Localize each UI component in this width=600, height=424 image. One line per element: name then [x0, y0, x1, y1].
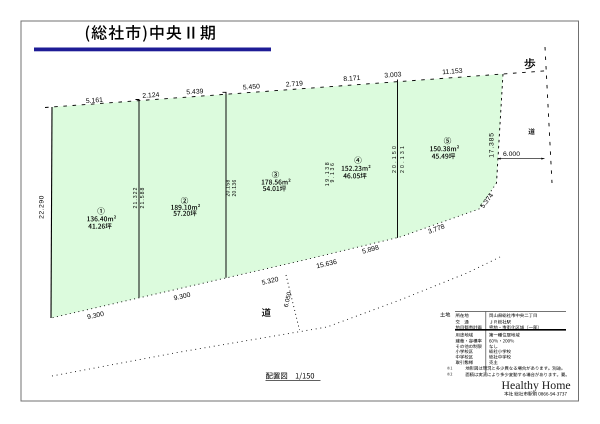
svg-text:5.320: 5.320: [261, 276, 279, 287]
svg-text:3.003: 3.003: [384, 71, 402, 79]
svg-text:5.161: 5.161: [86, 97, 104, 105]
svg-text:15.636: 15.636: [316, 259, 338, 271]
svg-text:22.290: 22.290: [38, 195, 45, 219]
svg-text:6.050: 6.050: [283, 291, 293, 308]
svg-text:Healthy Home: Healthy Home: [502, 378, 571, 392]
svg-text:9.300: 9.300: [173, 292, 191, 303]
svg-text:6.000: 6.000: [503, 151, 520, 158]
svg-text:2.124: 2.124: [142, 92, 160, 100]
svg-text:20.136: 20.136: [232, 179, 238, 196]
svg-text:20.131: 20.131: [400, 144, 406, 173]
svg-text:5.450: 5.450: [243, 83, 261, 91]
svg-text:21.588: 21.588: [140, 187, 146, 209]
svg-text:8.171: 8.171: [343, 75, 361, 83]
svg-text:21.322: 21.322: [133, 187, 139, 209]
svg-text:5.898: 5.898: [361, 244, 379, 255]
svg-text:9.136: 9.136: [330, 162, 336, 183]
svg-text:20.150: 20.150: [392, 144, 398, 173]
svg-text:20.158: 20.158: [226, 179, 232, 196]
svg-text:9.300: 9.300: [87, 311, 105, 321]
svg-text:5.439: 5.439: [186, 88, 204, 96]
svg-text:17.385: 17.385: [488, 132, 495, 158]
svg-text:2.719: 2.719: [286, 80, 304, 88]
svg-text:11.153: 11.153: [442, 68, 463, 76]
